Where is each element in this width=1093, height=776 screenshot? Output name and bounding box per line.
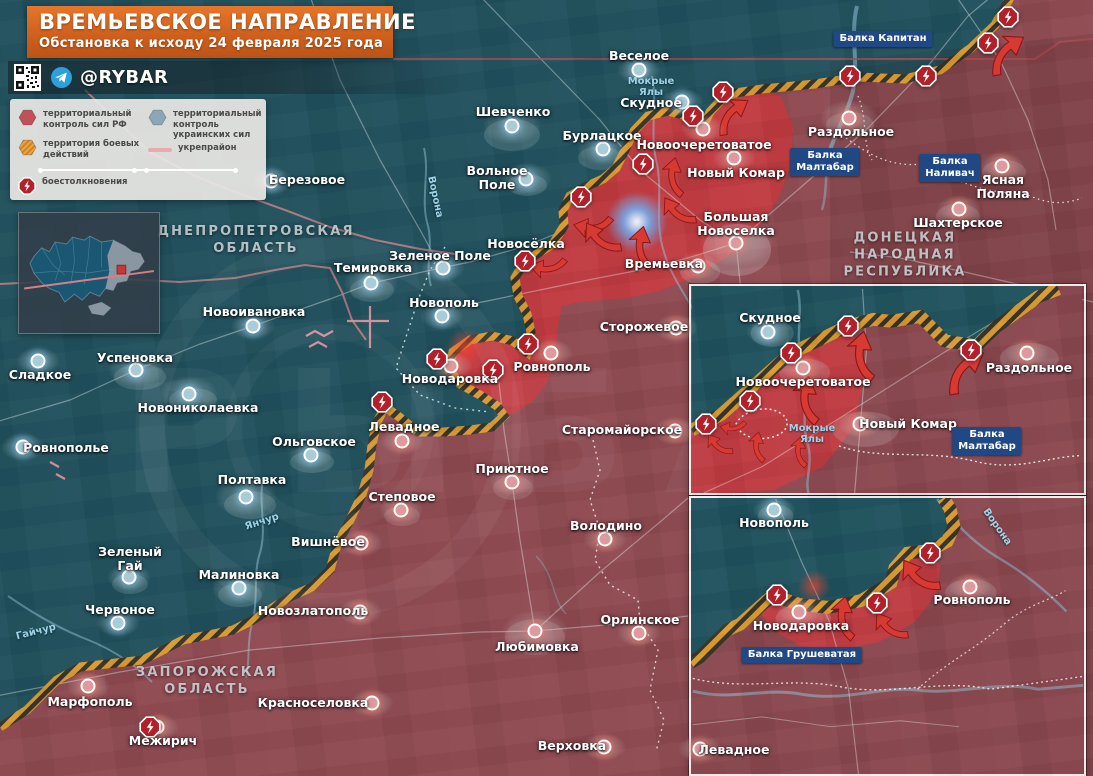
legend-item-label: территориальный контроль сил РФ: [43, 109, 153, 130]
legend-item-hex-clash: боестолкновения: [18, 177, 162, 195]
telegram-icon: [51, 67, 72, 88]
war-map-screenshot: РЫБАРЬ: [0, 0, 1093, 776]
hex-clash: [18, 177, 36, 195]
legend-item-hex-battle: территория боевых действий: [18, 139, 155, 160]
source-bar: @RYBAR: [8, 61, 468, 94]
legend-item-hex-ua: территориальный контроль украинских сил: [148, 109, 277, 141]
inset-panel-novodarovka: [689, 496, 1086, 776]
line-ukrep: [148, 143, 172, 152]
telegram-handle: @RYBAR: [80, 67, 168, 88]
map-title: ВРЕМЬЕВСКОЕ НАПРАВЛЕНИЕ: [39, 11, 383, 34]
map-legend: территориальный контроль сил РФтерритори…: [10, 99, 266, 200]
legend-item-label: боестолкновения: [42, 177, 162, 188]
legend-item-label: территориальный контроль украинских сил: [173, 109, 277, 141]
title-banner: ВРЕМЬЕВСКОЕ НАПРАВЛЕНИЕ Обстановка к исх…: [27, 6, 393, 58]
legend-divider: [38, 169, 238, 171]
ukraine-minimap: [18, 212, 160, 334]
hex-rf: [18, 109, 37, 126]
legend-item-label: территория боевых действий: [43, 139, 155, 160]
map-subtitle: Обстановка к исходу 24 февраля 2025 года: [39, 36, 383, 51]
legend-item-hex-rf: территориальный контроль сил РФ: [18, 109, 153, 130]
qr-code: [14, 64, 41, 91]
hex-ua: [148, 109, 167, 126]
legend-item-label: укрепрайон: [178, 143, 278, 154]
minimap-location-marker: [117, 265, 126, 274]
hex-battle: [18, 139, 37, 156]
legend-item-line-ukrep: укрепрайон: [148, 143, 278, 154]
inset-panel-novoocheretovatoye: [689, 284, 1086, 495]
